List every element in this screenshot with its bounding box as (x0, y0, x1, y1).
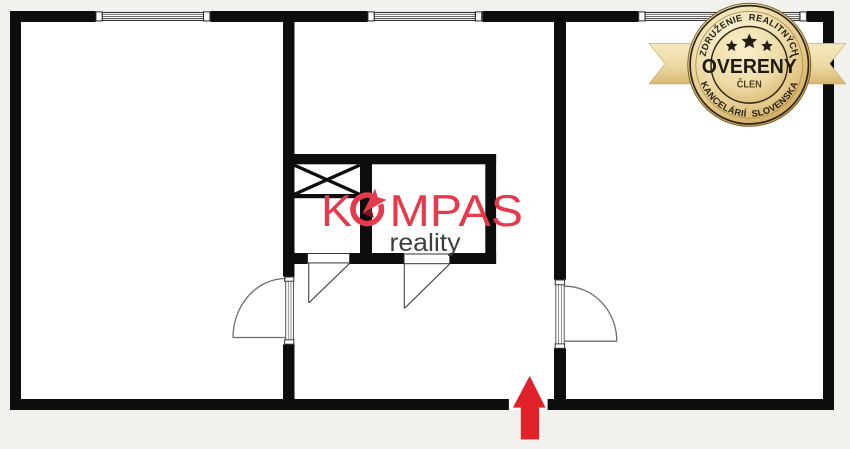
svg-text:reality: reality (390, 229, 462, 257)
svg-text:K: K (321, 187, 352, 236)
svg-text:ČLEN: ČLEN (737, 78, 762, 91)
svg-text:OVERENÝ: OVERENÝ (702, 54, 797, 78)
